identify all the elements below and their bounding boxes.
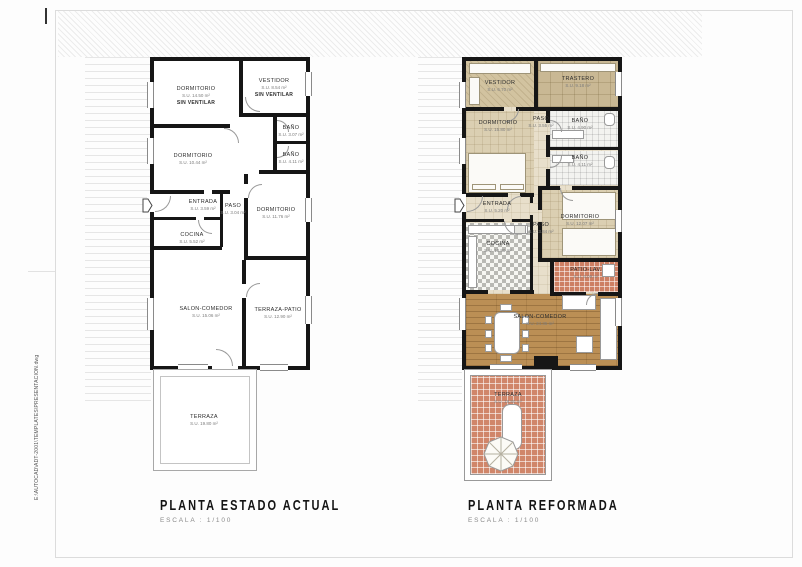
room-label-trastero: TRASTERO S.U. 9.18 m² (549, 76, 607, 89)
window-opening (615, 210, 622, 232)
room-name: TERRAZA-PATIO (249, 307, 307, 314)
storage-shelf (540, 63, 616, 72)
fold-mark-line (28, 271, 55, 272)
room-name: DORMITORIO (164, 153, 222, 160)
room-name: BAÑO (551, 118, 609, 125)
room-note: SIN VENTILAR (167, 100, 225, 106)
room-area: S.U. 15.06 m² (177, 313, 235, 319)
wall-segment (154, 124, 230, 128)
room-area: S.U. 4.11 m² (262, 159, 320, 165)
wall-segment (550, 262, 554, 296)
room-name: DORMITORIO (247, 207, 305, 214)
pillow (500, 184, 524, 190)
room-name: VESTIDOR (471, 80, 529, 87)
room-label-salon-comedor: SALON-COMEDOR S.U. 24.35 m² (511, 314, 569, 327)
wall-segment (510, 290, 534, 294)
wall-segment (538, 190, 542, 210)
chair (500, 304, 512, 311)
room-area: S.U. 14.50 m² (167, 93, 225, 99)
single-bed (562, 228, 616, 256)
room-label-bano: BAÑO S.U. 4.11 m² (551, 155, 609, 168)
chair (485, 344, 492, 352)
room-area: S.U. 11.76 m² (247, 214, 305, 220)
plan-title: PLANTA ESTADO ACTUAL (160, 496, 340, 514)
wall-segment (259, 170, 306, 174)
room-area: S.U. 19.80 m² (479, 399, 537, 405)
window-opening (305, 72, 312, 96)
room-label-dormitorio: DORMITORIO S.U. 12.07 m² (551, 214, 609, 227)
wall-segment (546, 169, 550, 186)
room-area: S.U. 8.54 m² (245, 85, 303, 91)
room-name: BAÑO (551, 155, 609, 162)
room-area: S.U. 10.44 m² (164, 160, 222, 166)
title-block-actual: PLANTA ESTADO ACTUAL ESCALA : 1/100 (160, 498, 356, 524)
window-opening (570, 364, 596, 371)
wall-segment (534, 61, 538, 111)
room-label-vestidor: VESTIDOR S.U. 8.54 m² SIN VENTILAR (245, 78, 303, 98)
room-name: BAÑO (262, 125, 320, 132)
room-label-cocina: COCINA S.U. 5.52 m² (163, 232, 221, 245)
room-label-terraza: TERRAZA S.U. 19.80 m² (479, 392, 537, 405)
room-name: PATIO-LAV. (557, 267, 615, 274)
plan-title: PLANTA REFORMADA (468, 496, 619, 514)
room-area: S.U. 5.20 m² (468, 208, 526, 214)
room-label-cocina: COCINA S.U. 10.80 m² (469, 241, 527, 254)
room-area: S.U. 24.35 m² (511, 321, 569, 327)
window-opening (459, 82, 466, 108)
wall-segment (244, 174, 248, 184)
room-area: S.U. 4.11 m² (551, 162, 609, 168)
room-area: S.U. 3.84 m² (512, 229, 570, 235)
wall-segment (466, 290, 488, 294)
wall-segment (242, 298, 246, 366)
room-area: S.U. 5.52 m² (163, 239, 221, 245)
window-opening (147, 138, 154, 164)
sidewalk-hatch-left-plan-b (418, 57, 462, 407)
sidewalk-hatch-left-plan-a (85, 57, 151, 407)
room-name: TRASTERO (549, 76, 607, 83)
room-name: TERRAZA (175, 414, 233, 421)
room-name: TERRAZA (479, 392, 537, 399)
room-note: SIN VENTILAR (245, 92, 303, 98)
room-area: S.U. 12.07 m² (551, 221, 609, 227)
title-block-reformada: PLANTA REFORMADA ESCALA : 1/100 (468, 498, 632, 524)
room-area: S.U. 6.09 m² (557, 274, 615, 280)
chair (485, 316, 492, 324)
plan-scale: ESCALA : 1/100 (160, 517, 356, 524)
fold-mark-tick (45, 8, 47, 24)
wall-segment (466, 107, 504, 111)
room-label-bano: BAÑO S.U. 4.90 m² (551, 118, 609, 131)
room-label-vestidor: VESTIDOR S.U. 6.70 m² (471, 80, 529, 93)
entrance-arrow-icon (142, 198, 153, 213)
room-name: DORMITORIO (551, 214, 609, 221)
entrance-arrow-icon (454, 198, 465, 213)
window-opening (260, 364, 288, 371)
wall-segment (598, 292, 618, 296)
wall-segment (242, 260, 246, 284)
room-name: COCINA (163, 232, 221, 239)
room-label-bano: BAÑO S.U. 4.11 m² (262, 152, 320, 165)
room-area: S.U. 9.18 m² (549, 83, 607, 89)
room-name: DORMITORIO (167, 86, 225, 93)
chair (522, 344, 529, 352)
file-path-vertical-text: E:\AUTOCAD\ADT-2001\TEMPLATES\PRESENTACI… (34, 355, 40, 500)
wall-segment (546, 135, 550, 157)
room-label-dormitorio: DORMITORIO S.U. 10.44 m² (164, 153, 222, 166)
drawing-sheet: E:\AUTOCAD\ADT-2001\TEMPLATES\PRESENTACI… (0, 0, 802, 567)
room-name: ENTRADA (468, 201, 526, 208)
wall-segment (154, 217, 196, 220)
room-name: COCINA (469, 241, 527, 248)
room-area: S.U. 12.90 m² (249, 314, 307, 320)
chair (522, 330, 529, 338)
wall-segment (572, 186, 618, 190)
wall-segment (277, 141, 306, 144)
wall-segment (550, 147, 618, 150)
window-opening (615, 72, 622, 96)
room-area: S.U. 19.80 m² (175, 421, 233, 427)
window-opening (147, 82, 154, 108)
wall-segment (530, 197, 533, 203)
window-opening (459, 138, 466, 164)
wall-segment (154, 190, 204, 194)
window-opening (147, 298, 154, 330)
room-label-terraza: TERRAZA S.U. 19.80 m² (175, 414, 233, 427)
room-name: SALON-COMEDOR (511, 314, 569, 321)
fireplace-block (534, 356, 558, 366)
coffee-table (576, 336, 593, 353)
chair (500, 355, 512, 362)
wall-segment (244, 256, 306, 260)
pillow (472, 184, 496, 190)
room-label-entrada: ENTRADA S.U. 5.20 m² (468, 201, 526, 214)
chair (485, 330, 492, 338)
window-opening (615, 298, 622, 326)
room-label-dormitorio: DORMITORIO S.U. 14.50 m² SIN VENTILAR (167, 86, 225, 106)
room-area: S.U. 3.07 m² (262, 132, 320, 138)
window-opening (305, 198, 312, 222)
wall-segment (239, 61, 243, 115)
room-label-dormitorio: DORMITORIO S.U. 11.76 m² (247, 207, 305, 220)
room-label-patio-lavadero: PATIO-LAV. S.U. 6.09 m² (557, 267, 615, 280)
room-name: BAÑO (262, 152, 320, 159)
wall-segment (154, 246, 222, 250)
room-label-bano: BAÑO S.U. 3.07 m² (262, 125, 320, 138)
room-name: SALON-COMEDOR (177, 306, 235, 313)
room-area: S.U. 10.80 m² (469, 248, 527, 254)
neighbor-hatch-top (58, 11, 702, 57)
room-name: VESTIDOR (245, 78, 303, 85)
room-label-salon-comedor: SALON-COMEDOR S.U. 15.06 m² (177, 306, 235, 319)
window-opening (459, 298, 466, 330)
plan-scale: ESCALA : 1/100 (468, 517, 632, 524)
wall-segment (466, 219, 504, 222)
room-label-terraza-patio: TERRAZA-PATIO S.U. 12.90 m² (249, 307, 307, 320)
parasol-icon (482, 435, 520, 473)
room-area: S.U. 6.70 m² (471, 87, 529, 93)
room-area: S.U. 4.90 m² (551, 125, 609, 131)
closet (469, 63, 531, 74)
